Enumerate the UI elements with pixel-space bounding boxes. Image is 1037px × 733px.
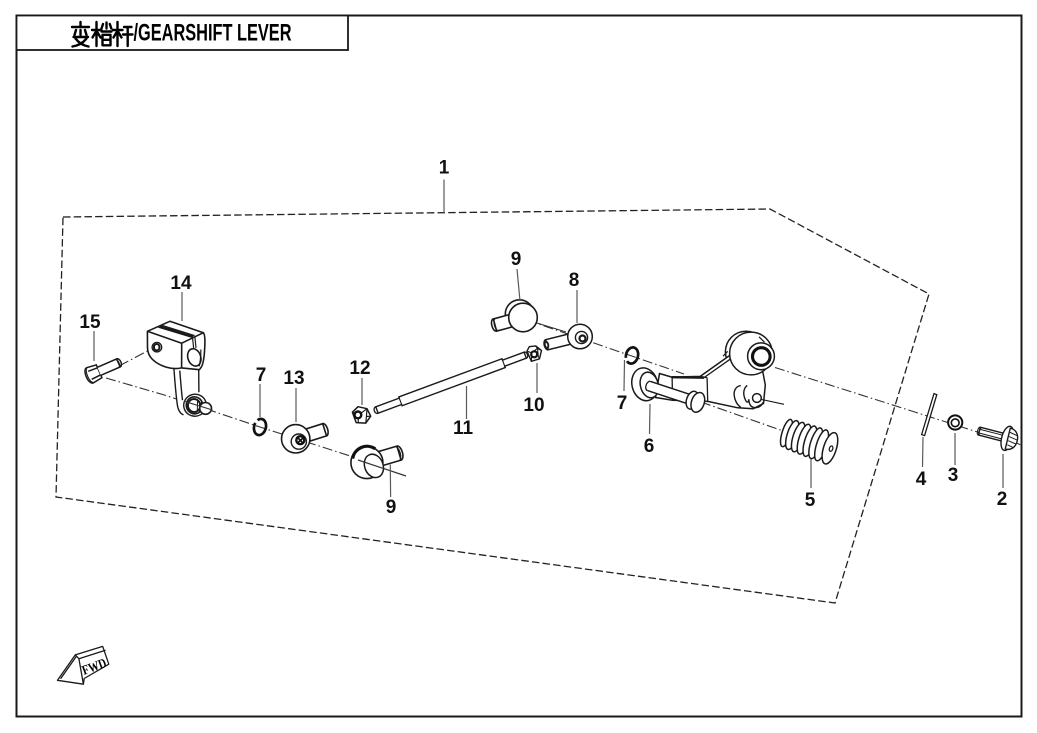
- svg-text:/GEARSHIFT LEVER: /GEARSHIFT LEVER: [134, 20, 292, 47]
- svg-text:11: 11: [453, 418, 474, 439]
- svg-text:1: 1: [439, 158, 450, 179]
- svg-text:7: 7: [617, 393, 628, 414]
- svg-text:13: 13: [283, 368, 304, 389]
- svg-text:7: 7: [256, 365, 267, 386]
- svg-text:2: 2: [997, 489, 1008, 510]
- svg-text:4: 4: [916, 469, 927, 490]
- svg-text:9: 9: [511, 249, 522, 270]
- svg-text:9: 9: [386, 497, 397, 518]
- svg-text:10: 10: [523, 395, 544, 416]
- svg-text:6: 6: [644, 436, 655, 457]
- svg-text:14: 14: [170, 273, 192, 294]
- svg-text:3: 3: [948, 465, 959, 486]
- svg-text:5: 5: [805, 490, 816, 511]
- svg-text:15: 15: [79, 312, 101, 333]
- svg-text:12: 12: [349, 358, 370, 379]
- svg-text:8: 8: [569, 270, 580, 291]
